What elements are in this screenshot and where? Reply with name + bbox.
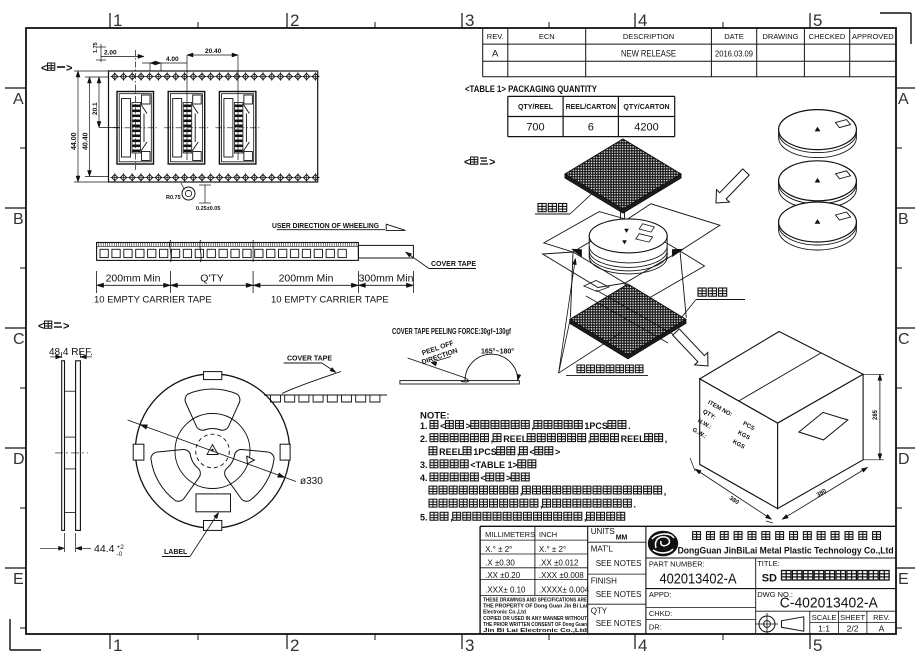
svg-text:REEL/CARTON: REEL/CARTON [566, 104, 616, 111]
svg-text:SEE NOTES: SEE NOTES [596, 559, 642, 568]
svg-text:>: > [466, 421, 471, 431]
svg-text:COPIED OR USED IN ANY MANNER W: COPIED OR USED IN ANY MANNER WITHOUT [483, 616, 587, 622]
svg-text:4: 4 [638, 11, 647, 30]
svg-text:10 EMPTY CARRIER TAPE: 10 EMPTY CARRIER TAPE [94, 295, 212, 306]
svg-text:X.° ± 2°: X.° ± 2° [539, 545, 566, 554]
svg-text:6: 6 [588, 122, 594, 134]
svg-text:THESE DRAWINGS AND SPECIFICATI: THESE DRAWINGS AND SPECIFICATIONS ARE [483, 598, 588, 604]
svg-text:,: , [665, 434, 668, 444]
svg-text:20.40: 20.40 [205, 48, 222, 55]
svg-text:44.00: 44.00 [71, 132, 78, 150]
svg-text:4.00: 4.00 [166, 56, 179, 63]
svg-text:ECN: ECN [539, 32, 555, 41]
svg-text:SHEET: SHEET [840, 613, 865, 622]
svg-text:<TABLE 1>: <TABLE 1> [470, 460, 517, 470]
svg-text:,: , [664, 486, 667, 496]
svg-text:B: B [13, 211, 24, 228]
svg-text:200mm Min: 200mm Min [279, 273, 334, 285]
svg-text:D: D [898, 451, 910, 468]
svg-text:1.75: 1.75 [93, 42, 99, 53]
svg-text:NEW RELEASE: NEW RELEASE [621, 49, 676, 59]
svg-text:DRAWING: DRAWING [763, 32, 799, 41]
svg-text:<: < [530, 447, 535, 457]
svg-text:<TABLE 1> PACKAGING QUANTITY: <TABLE 1> PACKAGING QUANTITY [465, 84, 598, 95]
svg-text:.XXX ±0.008: .XXX ±0.008 [539, 571, 584, 580]
svg-text:.XX ±0.20: .XX ±0.20 [485, 571, 521, 580]
svg-text:1.: 1. [420, 421, 428, 431]
svg-text:<: < [481, 473, 486, 483]
svg-text:-0: -0 [117, 551, 123, 558]
svg-text:THE PRIOR WRITTEN CONSENT OF D: THE PRIOR WRITTEN CONSENT OF Dong Guan [483, 622, 587, 628]
svg-text:>: > [66, 63, 72, 75]
svg-text:DESCRIPTION: DESCRIPTION [623, 32, 674, 41]
svg-text:285: 285 [873, 409, 879, 420]
svg-text:200mm Min: 200mm Min [106, 273, 161, 285]
svg-text:FINISH: FINISH [591, 577, 617, 586]
svg-text:>: > [63, 321, 69, 333]
svg-text:LABEL: LABEL [164, 549, 188, 556]
svg-text:APPD:: APPD: [649, 590, 672, 599]
svg-text:USER DIRECTION OF WHEELING: USER DIRECTION OF WHEELING [272, 221, 379, 230]
svg-text:E: E [898, 571, 909, 588]
svg-text:2/2: 2/2 [847, 624, 859, 634]
svg-text:1: 1 [113, 11, 122, 30]
svg-text:APPROVED: APPROVED [852, 32, 894, 41]
svg-text:1PCS: 1PCS [473, 447, 497, 457]
svg-text:<: < [440, 421, 445, 431]
svg-text:3.: 3. [420, 460, 428, 470]
svg-text:SD: SD [762, 573, 777, 585]
svg-text:.XXXX± 0.004: .XXXX± 0.004 [539, 586, 590, 595]
svg-text:2: 2 [290, 11, 299, 30]
svg-text:.XX ±0.012: .XX ±0.012 [539, 559, 579, 568]
svg-text:Q'TY: Q'TY [200, 273, 224, 285]
svg-text:1PCS: 1PCS [584, 421, 608, 431]
svg-text:4.: 4. [420, 473, 428, 483]
svg-text:REEL: REEL [503, 434, 528, 444]
svg-text:QTY: QTY [591, 607, 608, 616]
svg-text:C: C [13, 331, 25, 348]
svg-text:10 EMPTY CARRIER TAPE: 10 EMPTY CARRIER TAPE [271, 295, 389, 306]
svg-text:1:1: 1:1 [818, 624, 830, 634]
svg-text:TITLE:: TITLE: [757, 559, 780, 568]
svg-text:A: A [879, 624, 885, 634]
svg-text:+2: +2 [117, 544, 125, 551]
svg-text:MM: MM [616, 535, 628, 542]
svg-text:2016.03.09: 2016.03.09 [715, 49, 753, 59]
svg-text:X.° ± 2°: X.° ± 2° [485, 545, 512, 554]
svg-text:DR:: DR: [649, 623, 662, 632]
svg-text:300mm Min: 300mm Min [359, 273, 414, 285]
svg-text:1: 1 [113, 636, 122, 655]
svg-text:A: A [898, 91, 909, 108]
svg-text:B: B [898, 211, 909, 228]
svg-text:.X ±0.30: .X ±0.30 [485, 559, 515, 568]
svg-text:2.: 2. [420, 434, 428, 444]
svg-text:<: < [41, 63, 47, 75]
svg-text:THE PROPERTY OF Dong Guan Jin: THE PROPERTY OF Dong Guan Jin Bi Lai [483, 604, 588, 610]
svg-text:SEE NOTES: SEE NOTES [596, 590, 642, 599]
svg-text:CHECKED: CHECKED [809, 32, 846, 41]
svg-text:REV.: REV. [873, 613, 890, 622]
svg-text:20.1: 20.1 [92, 102, 99, 115]
svg-text:COVER TAPE PEELING FORCE:30gf~: COVER TAPE PEELING FORCE:30gf~130gf [392, 327, 511, 336]
svg-text:.XXX± 0.10: .XXX± 0.10 [485, 586, 526, 595]
svg-text:MAT'L: MAT'L [591, 545, 614, 554]
svg-text:2: 2 [290, 636, 299, 655]
svg-text:E: E [13, 571, 24, 588]
svg-text:5.: 5. [420, 513, 428, 523]
svg-text:2.00: 2.00 [104, 50, 117, 57]
svg-text:QTY/CARTON: QTY/CARTON [623, 104, 669, 111]
svg-text:402013402-A: 402013402-A [660, 571, 737, 588]
svg-text:.: . [634, 499, 637, 509]
svg-text:3: 3 [465, 11, 474, 30]
svg-text:DATE: DATE [724, 32, 743, 41]
svg-text:QTY/REEL: QTY/REEL [518, 104, 554, 111]
svg-text:D: D [13, 451, 25, 468]
svg-text:40.40: 40.40 [83, 132, 90, 150]
svg-text:REV.: REV. [487, 32, 504, 41]
svg-text:4200: 4200 [634, 122, 658, 134]
svg-text:0.25±0.05: 0.25±0.05 [196, 206, 220, 212]
svg-text:UNITS: UNITS [591, 527, 615, 536]
svg-text:<: < [38, 321, 44, 333]
svg-text:C: C [898, 331, 910, 348]
svg-text:C-402013402-A: C-402013402-A [780, 595, 878, 612]
svg-text:>: > [489, 157, 495, 169]
svg-text:>: > [555, 447, 560, 457]
svg-text:MILLIMETERS: MILLIMETERS [485, 530, 535, 539]
svg-text:REEL: REEL [439, 447, 464, 457]
svg-text:.: . [628, 421, 631, 431]
svg-text:5: 5 [813, 636, 822, 655]
svg-text:PART NUMBER:: PART NUMBER: [649, 560, 705, 569]
svg-text:44.4: 44.4 [94, 543, 115, 555]
svg-text:A: A [13, 91, 24, 108]
svg-text:700: 700 [526, 122, 544, 134]
svg-text:3: 3 [465, 636, 474, 655]
svg-text:CHKD:: CHKD: [649, 609, 672, 618]
svg-text:A: A [492, 49, 499, 60]
svg-text:5: 5 [813, 11, 822, 30]
svg-text:DongGuan JinBiLai Metal Plast: DongGuan JinBiLai Metal Plastic Technolo… [678, 546, 894, 556]
svg-text:COVER TAPE: COVER TAPE [287, 356, 332, 363]
svg-text:SEE NOTES: SEE NOTES [596, 619, 642, 628]
svg-text:Jin Bi Lai Electronic Co.,Lt: Jin Bi Lai Electronic Co.,Ltd [483, 628, 587, 634]
svg-text:<: < [464, 157, 470, 169]
svg-text:COVER TAPE: COVER TAPE [431, 261, 476, 268]
svg-text:R0.75: R0.75 [166, 195, 181, 201]
svg-text:Electronic Co.,Ltd: Electronic Co.,Ltd [483, 610, 526, 616]
svg-text:4: 4 [638, 636, 647, 655]
svg-text:SCALE: SCALE [812, 613, 837, 622]
svg-text:REEL: REEL [621, 434, 646, 444]
svg-text:>: > [506, 473, 511, 483]
svg-text:165°~180°: 165°~180° [481, 348, 514, 356]
svg-text:INCH: INCH [539, 530, 557, 539]
svg-text:ø330: ø330 [300, 476, 323, 487]
